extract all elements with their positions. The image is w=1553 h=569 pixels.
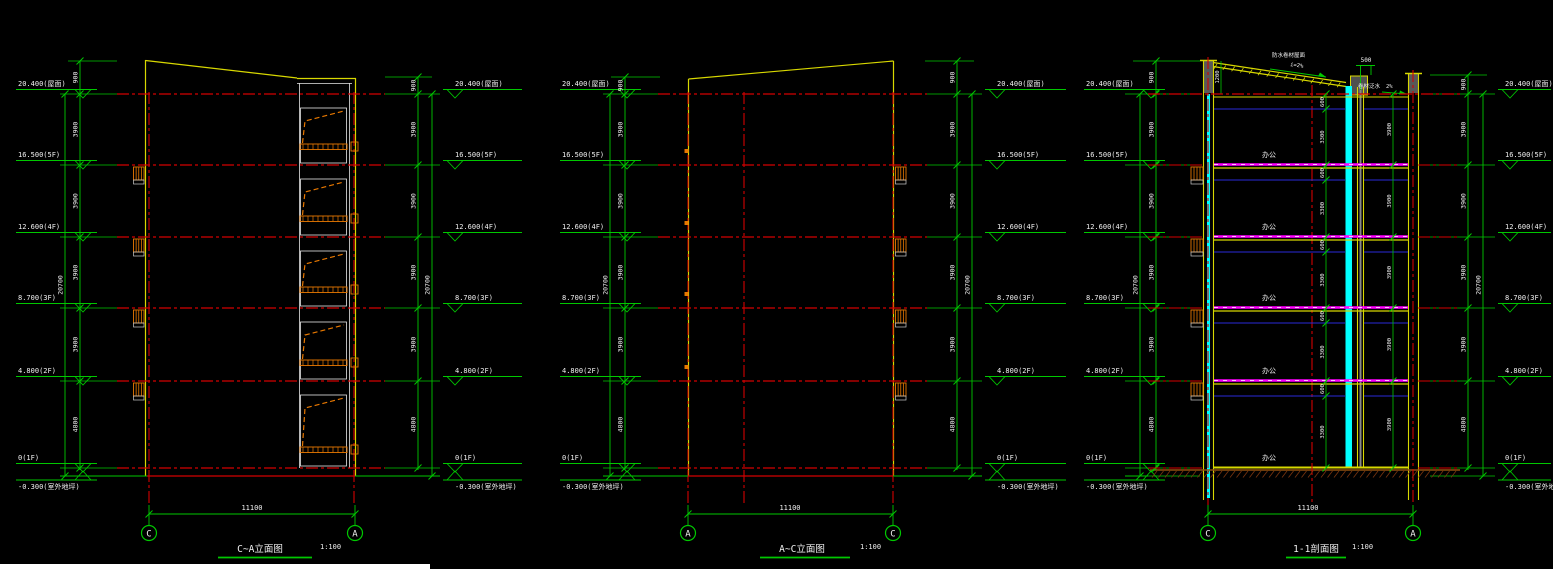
drawing-title: A~C立面图 — [779, 543, 825, 555]
stair-landing — [300, 287, 347, 293]
room-label: 办公 — [1262, 453, 1276, 462]
ground-hatch — [1191, 471, 1196, 478]
level-elevation-label: 12.600(4F) — [455, 223, 497, 231]
ground-hatch — [1425, 471, 1430, 478]
story-dim-text: 3900 — [1148, 265, 1156, 281]
level-elevation-label: 20.400(屋面) — [1086, 80, 1134, 88]
ground-hatch — [1243, 471, 1248, 478]
level-marker-triangle — [1502, 377, 1518, 386]
room-label: 办公 — [1262, 293, 1276, 302]
stair-flight-dashed — [303, 182, 345, 215]
room-label: 办公 — [1262, 366, 1276, 375]
story-dim-text: 3900 — [949, 337, 957, 353]
ground-hatch — [1237, 471, 1242, 478]
room-label: 办公 — [1262, 150, 1276, 159]
story-dim-text: 4800 — [410, 417, 418, 433]
elevation-ac-facade — [689, 61, 894, 476]
interior-dim-text: 3900 — [1387, 194, 1393, 207]
ground-hatch — [1282, 471, 1287, 478]
ground-hatch — [1334, 471, 1339, 478]
drawing-titles: C~A立面图 1:100 A~C立面图 1:100 1-1剖面图 1:100 1… — [218, 504, 1373, 558]
ground-hatch — [1328, 471, 1333, 478]
story-dim-text: 4800 — [1148, 417, 1156, 433]
level-elevation-label: -0.300(室外地坪) — [1505, 482, 1553, 491]
story-dim-text: 3900 — [617, 193, 625, 209]
interior-dim-text: 3900 — [1387, 123, 1393, 136]
story-dim-text: 900 — [1148, 72, 1156, 84]
louver-window-sill — [134, 396, 145, 400]
ground-hatch — [1399, 471, 1404, 478]
grid-bubble-letter: A — [1410, 530, 1416, 540]
interior-dim-text: 600 — [1320, 311, 1326, 321]
roof-slope-label: i=2% — [1290, 62, 1305, 70]
level-marker-triangle — [447, 377, 463, 386]
slope-right-label: 2% — [1386, 84, 1393, 90]
level-marker-triangle — [447, 304, 463, 313]
story-dim-text: 3900 — [617, 337, 625, 353]
level-marker-triangle — [1502, 90, 1518, 99]
level-marker-triangle — [989, 90, 1005, 99]
louver-window-sill — [1191, 252, 1203, 256]
ground-hatch — [1295, 471, 1300, 478]
level-marker-triangle — [989, 233, 1005, 242]
level-elevation-label: 16.500(5F) — [562, 151, 604, 159]
penthouse-dim-text: 500 — [1361, 57, 1372, 64]
ground-hatch — [1354, 471, 1359, 478]
overall-dim-text: 20700 — [964, 275, 972, 295]
level-elevation-label: 20.400(屋面) — [562, 80, 610, 88]
level-elevation-label: 20.400(屋面) — [18, 80, 66, 88]
story-dim-text: 3900 — [72, 337, 80, 353]
ground-hatch — [1289, 471, 1294, 478]
level-marker-triangle — [1502, 161, 1518, 170]
drawing-title: 1-1剖面图 — [1293, 543, 1339, 555]
level-elevation-label: 4.800(2F) — [997, 367, 1035, 375]
ground-hatch — [1367, 471, 1372, 478]
level-elevation-label: 8.700(3F) — [18, 294, 56, 302]
level-elevation-label: 16.500(5F) — [455, 151, 497, 159]
louver-window-sill — [1191, 396, 1203, 400]
grid-bubble-letter: C — [890, 530, 895, 540]
level-elevation-label: 16.500(5F) — [18, 151, 60, 159]
ground-hatch — [1217, 471, 1222, 478]
ground-hatch — [1302, 471, 1307, 478]
grid-bubble-letter: A — [352, 530, 358, 540]
width-dim-text: 11100 — [241, 504, 262, 512]
ground-hatch — [1185, 471, 1190, 478]
roof-material-label: 防水卷材屋面 — [1272, 51, 1306, 59]
level-elevation-label: 4.800(2F) — [1086, 367, 1124, 375]
ground-hatch — [1386, 471, 1391, 478]
story-dim-text: 3900 — [72, 265, 80, 281]
ground-hatch — [1256, 471, 1261, 478]
ground-hatch — [1263, 471, 1268, 478]
story-dim-text: 3900 — [72, 122, 80, 138]
level-marker-triangle — [989, 161, 1005, 170]
interior-dim-text: 600 — [1320, 168, 1326, 178]
width-dim-text: 11100 — [779, 504, 800, 512]
level-elevation-label: 12.600(4F) — [18, 223, 60, 231]
drawing-scale: 1:100 — [320, 543, 341, 551]
story-dim-text: 3900 — [410, 337, 418, 353]
width-dim-text: 11100 — [1297, 504, 1318, 512]
louver-window-sill — [134, 180, 145, 184]
ground-hatch — [1393, 471, 1398, 478]
louver-window-sill — [1191, 323, 1203, 327]
stair-landing — [300, 360, 347, 366]
level-elevation-label: 20.400(屋面) — [1505, 80, 1553, 88]
level-marker-triangle — [1502, 304, 1518, 313]
level-elevation-label: 4.800(2F) — [455, 367, 493, 375]
level-elevation-label: 0(1F) — [455, 454, 476, 462]
interior-dim-text: 3300 — [1320, 130, 1326, 143]
drawing-scale: 1:100 — [1352, 543, 1373, 551]
story-dim-text: 3900 — [1148, 193, 1156, 209]
ground-hatch — [1380, 471, 1385, 478]
story-dim-text: 3900 — [1460, 122, 1468, 138]
stair-flight-dashed — [303, 325, 345, 359]
roof-slope-line — [1213, 63, 1346, 83]
interior-dim-text: 600 — [1320, 97, 1326, 107]
grid-bubble-letter: C — [146, 530, 151, 540]
level-marker-triangle — [447, 90, 463, 99]
wall-tick — [685, 292, 689, 296]
ground-hatch — [1321, 471, 1326, 478]
grid-bubble-letter: C — [1205, 530, 1210, 540]
ground-hatch — [1230, 471, 1235, 478]
ground-hatch — [1451, 471, 1456, 478]
level-elevation-label: 12.600(4F) — [997, 223, 1039, 231]
overall-dim-text: 20700 — [57, 275, 65, 295]
level-marker-triangle — [447, 161, 463, 170]
level-elevation-label: 16.500(5F) — [1505, 151, 1547, 159]
slope-arrow-head — [1318, 73, 1326, 78]
story-dim-text: 4800 — [1460, 417, 1468, 433]
overall-dim-text: 20700 — [602, 275, 610, 295]
level-marker-triangle — [989, 377, 1005, 386]
level-elevation-label: 0(1F) — [997, 454, 1018, 462]
interior-dim-text: 600 — [1320, 384, 1326, 394]
wall-tick — [685, 365, 689, 369]
louver-window-sill — [134, 252, 145, 256]
level-elevation-label: -0.300(室外地坪) — [1086, 482, 1148, 491]
level-elevation-label: 4.800(2F) — [18, 367, 56, 375]
flashing-label: 卷材泛水 — [1358, 82, 1381, 90]
interior-column — [1346, 86, 1353, 468]
story-dim-text: 900 — [410, 80, 418, 92]
room-label: 办公 — [1262, 222, 1276, 231]
story-dim-text: 4800 — [949, 417, 957, 433]
interior-dim-text: 3900 — [1387, 418, 1393, 431]
parapet-slope-line — [146, 61, 298, 79]
story-dim-text: 3900 — [1460, 265, 1468, 281]
parapet-dim-text: 1200 — [1215, 70, 1221, 83]
ground-hatch — [1438, 471, 1443, 478]
story-dim-text: 3900 — [410, 122, 418, 138]
level-elevation-label: 4.800(2F) — [1505, 367, 1543, 375]
level-elevation-label: 16.500(5F) — [1086, 151, 1128, 159]
ground-hatch — [1165, 471, 1170, 478]
level-marker-triangle — [447, 233, 463, 242]
story-dim-text: 3900 — [1148, 337, 1156, 353]
ground-hatch — [1373, 471, 1378, 478]
ground-hatch — [1250, 471, 1255, 478]
interior-dim-text: 3300 — [1320, 345, 1326, 358]
level-elevation-label: 20.400(屋面) — [997, 80, 1045, 88]
story-dim-text: 3900 — [949, 193, 957, 209]
ground-hatch — [1341, 471, 1346, 478]
overall-dim-text: 20700 — [1475, 275, 1483, 295]
level-elevation-label: 16.500(5F) — [997, 151, 1039, 159]
story-dim-text: 3900 — [617, 122, 625, 138]
story-dim-text: 3900 — [949, 265, 957, 281]
drawing-sheet: 500 1200 防水卷材屋面 i=2% 卷材泛水 2% 办公 办公 办公 办公… — [0, 0, 1553, 569]
story-dim-text: 3900 — [1460, 193, 1468, 209]
story-dim-text: 900 — [617, 80, 625, 92]
level-elevation-label: -0.300(室外地坪) — [997, 482, 1059, 491]
interior-dim-text: 3300 — [1320, 202, 1326, 215]
louver-window-sill — [134, 323, 145, 327]
story-dim-text: 900 — [72, 72, 80, 84]
ground-hatch — [1419, 471, 1424, 478]
story-dim-text: 900 — [1460, 79, 1468, 91]
ground-hatch — [1347, 471, 1352, 478]
cad-drawing-canvas[interactable]: 500 1200 防水卷材屋面 i=2% 卷材泛水 2% 办公 办公 办公 办公… — [0, 0, 1553, 569]
level-elevation-label: 12.600(4F) — [1086, 223, 1128, 231]
level-elevation-label: 20.400(屋面) — [455, 80, 503, 88]
ground-hatch — [1178, 471, 1183, 478]
bottom-strip — [0, 564, 430, 569]
louver-window-sill — [1191, 180, 1203, 184]
level-elevation-label: 8.700(3F) — [997, 294, 1035, 302]
level-elevation-label: 0(1F) — [1086, 454, 1107, 462]
story-dim-text: 4800 — [617, 417, 625, 433]
level-elevation-label: -0.300(室外地坪) — [562, 482, 624, 491]
drawing-scale: 1:100 — [860, 543, 881, 551]
ground-hatch — [1269, 471, 1274, 478]
level-elevation-label: -0.300(室外地坪) — [18, 482, 80, 491]
level-elevation-label: -0.300(室外地坪) — [455, 482, 517, 491]
story-dim-text: 3900 — [1460, 337, 1468, 353]
interior-dim-text: 3300 — [1320, 425, 1326, 438]
wall-tick — [685, 221, 689, 225]
grid-bubble-letter: A — [685, 530, 691, 540]
level-elevation-label: 12.600(4F) — [1505, 223, 1547, 231]
drawing-title: C~A立面图 — [237, 543, 283, 555]
ground-hatch — [1224, 471, 1229, 478]
story-dim-text: 3900 — [1148, 122, 1156, 138]
story-dim-text: 3900 — [617, 265, 625, 281]
interior-dim-text: 600 — [1320, 240, 1326, 250]
stair-flight-dashed — [303, 111, 345, 143]
stair-landing — [300, 447, 347, 453]
elevation-ca-facade — [146, 60, 357, 476]
wall-tick — [685, 149, 689, 153]
ground-hatch — [1198, 471, 1203, 478]
story-dim-text: 3900 — [410, 265, 418, 281]
overall-dim-text: 20700 — [1132, 275, 1140, 295]
level-elevation-label: 0(1F) — [562, 454, 583, 462]
level-elevation-label: 12.600(4F) — [562, 223, 604, 231]
ground-hatch — [1159, 471, 1164, 478]
story-dim-text: 3900 — [410, 193, 418, 209]
louver-window-sill — [896, 252, 907, 256]
louver-window-sill — [896, 396, 907, 400]
level-elevation-label: 8.700(3F) — [1505, 294, 1543, 302]
story-dim-text: 3900 — [72, 193, 80, 209]
stair-landing — [300, 216, 347, 222]
level-elevation-label: 8.700(3F) — [1086, 294, 1124, 302]
overall-dim-text: 20700 — [424, 275, 432, 295]
interior-dim-text: 3900 — [1387, 338, 1393, 351]
story-dim-text: 3900 — [949, 122, 957, 138]
ground-hatch — [1360, 471, 1365, 478]
ground-hatch — [1172, 471, 1177, 478]
level-elevation-label: 8.700(3F) — [562, 294, 600, 302]
interior-dim-text: 3300 — [1320, 273, 1326, 286]
level-elevation-label: 0(1F) — [18, 454, 39, 462]
ground-hatch — [1315, 471, 1320, 478]
story-dim-text: 900 — [949, 72, 957, 84]
stair-flight-dashed — [303, 254, 345, 286]
louver-window-sill — [896, 180, 907, 184]
level-elevation-label: 8.700(3F) — [455, 294, 493, 302]
interior-dim-text: 3900 — [1387, 266, 1393, 279]
level-elevation-label: 4.800(2F) — [562, 367, 600, 375]
ground-hatch — [1445, 471, 1450, 478]
level-marker-triangle — [989, 304, 1005, 313]
louver-window-sill — [896, 323, 907, 327]
level-elevation-label: 0(1F) — [1505, 454, 1526, 462]
stair-flight-dashed — [303, 398, 345, 446]
ground-hatch — [1432, 471, 1437, 478]
story-dim-text: 4800 — [72, 417, 80, 433]
stair-flight-box — [301, 395, 347, 466]
ground-hatch — [1276, 471, 1281, 478]
level-marker-triangle — [1502, 233, 1518, 242]
stair-landing — [300, 144, 347, 150]
parapet-slope-line — [689, 61, 894, 79]
